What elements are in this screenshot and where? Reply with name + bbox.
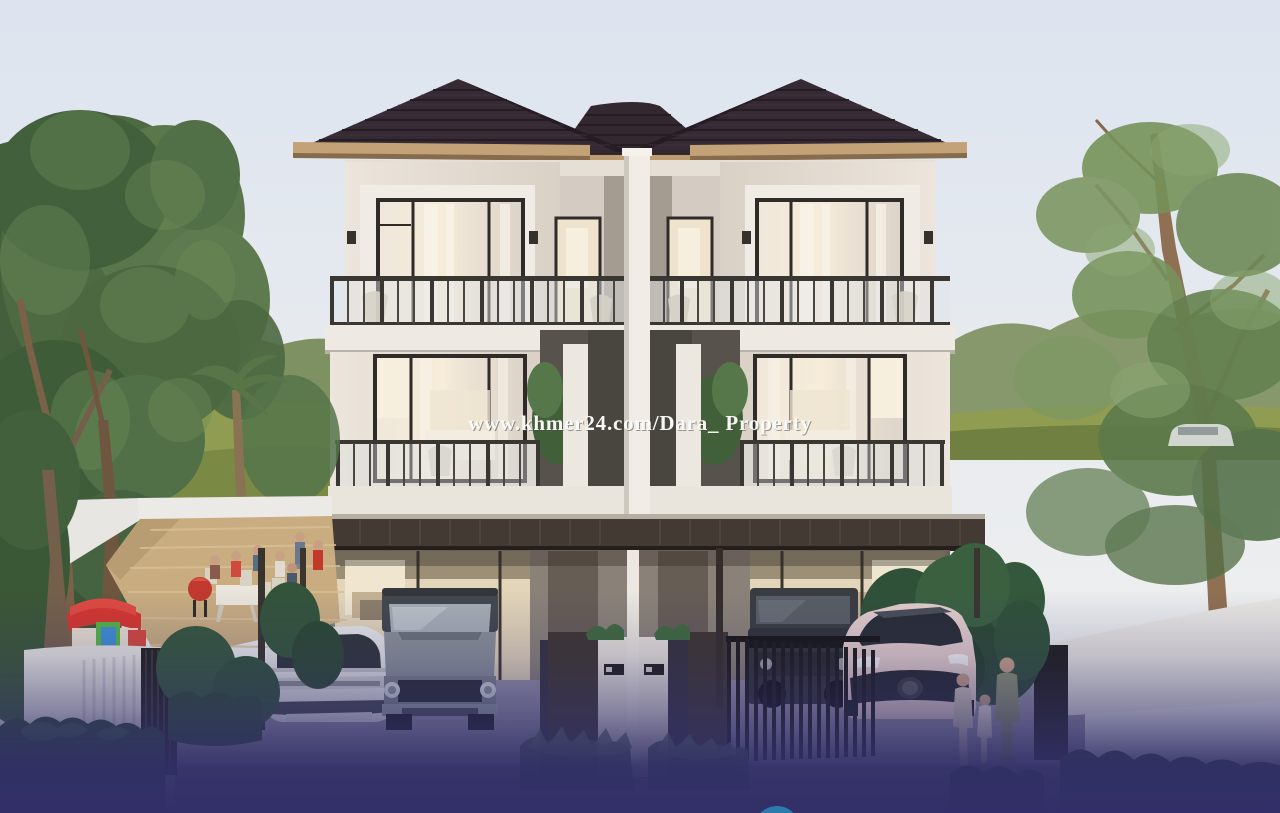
svg-text:www.khmer24.com/Dara_ Property: www.khmer24.com/Dara_ Property [468, 411, 812, 435]
